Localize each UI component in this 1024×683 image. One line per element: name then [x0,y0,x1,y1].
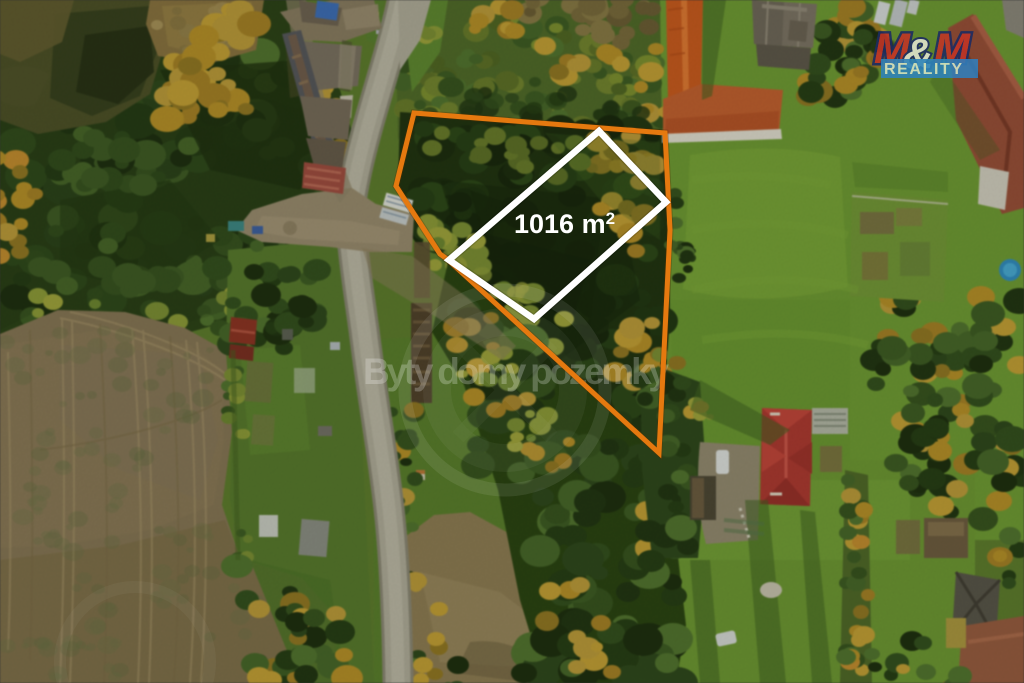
svg-text:1016 m2: 1016 m2 [514,209,615,239]
svg-text:REALITY: REALITY [884,61,964,78]
svg-text:Byty domy pozemky: Byty domy pozemky [363,351,669,392]
